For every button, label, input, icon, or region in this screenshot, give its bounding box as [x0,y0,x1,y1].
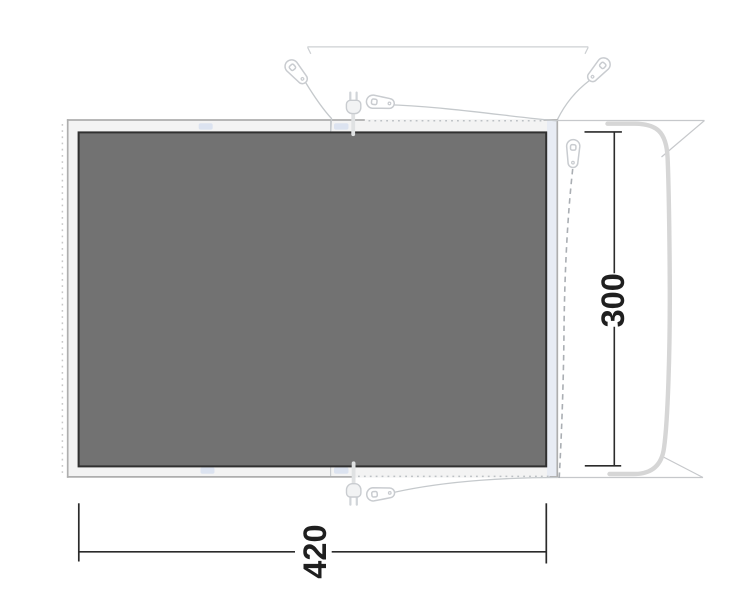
svg-text:420: 420 [297,524,333,578]
svg-text:300: 300 [595,273,631,327]
